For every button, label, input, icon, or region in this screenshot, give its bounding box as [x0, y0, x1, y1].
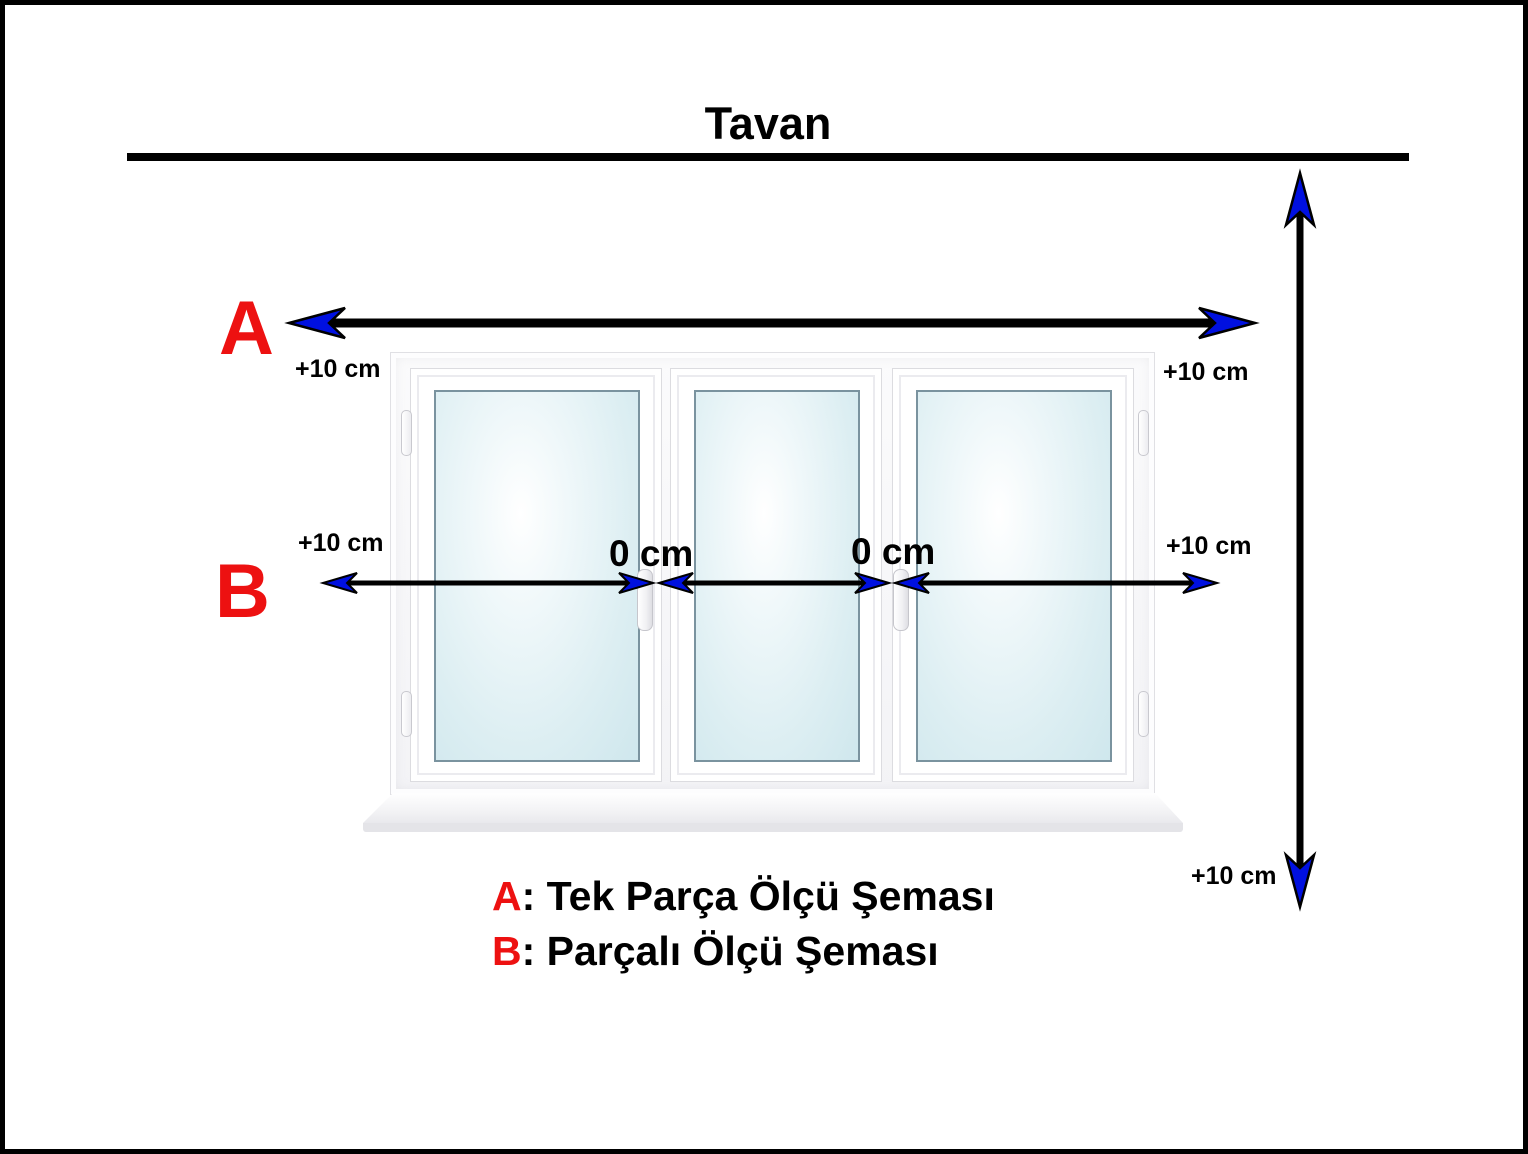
arrow-shaft [323, 319, 1221, 328]
window-hinge-top-right [1138, 410, 1149, 456]
window-hinge-bottom-right [1138, 691, 1149, 737]
arrow-shaft [915, 581, 1197, 586]
label-b-right-offset: +10 cm [1166, 534, 1252, 559]
label-height-bottom-offset: +10 cm [1191, 864, 1277, 889]
arrow-shaft [1297, 211, 1304, 869]
legend-text-b: : Parçalı Ölçü Şeması [522, 928, 939, 974]
window-sill [363, 793, 1183, 823]
height-arrow [1282, 173, 1318, 907]
marker-b: B [215, 554, 270, 630]
label-b-left-offset: +10 cm [298, 531, 384, 556]
window-hinge-top-left [401, 410, 412, 456]
arrow-shaft [343, 581, 633, 586]
label-a-left-offset: +10 cm [295, 357, 381, 382]
legend-line-b: B: Parçalı Ölçü Şeması [492, 924, 995, 979]
ceiling-line [127, 153, 1409, 161]
label-b-gap-1: 0 cm [609, 535, 693, 572]
ceiling-label: Tavan [127, 101, 1409, 146]
arrow-shaft [679, 581, 869, 586]
width-arrow-b-right [895, 571, 1217, 595]
width-arrow-b-left [323, 571, 653, 595]
window-hinge-bottom-left [401, 691, 412, 737]
marker-a: A [219, 291, 274, 367]
legend-line-a: A: Tek Parça Ölçü Şeması [492, 869, 995, 924]
legend-key-a: A [492, 873, 522, 919]
width-arrow-a [289, 305, 1255, 341]
legend: A: Tek Parça Ölçü Şeması B: Parçalı Ölçü… [492, 869, 995, 978]
diagram-canvas: Tavan A B [0, 0, 1528, 1154]
legend-key-b: B [492, 928, 522, 974]
width-arrow-b-middle [659, 571, 889, 595]
label-b-gap-2: 0 cm [851, 533, 935, 570]
window-sill-base [363, 823, 1183, 832]
label-a-right-offset: +10 cm [1163, 360, 1249, 385]
legend-text-a: : Tek Parça Ölçü Şeması [522, 873, 995, 919]
